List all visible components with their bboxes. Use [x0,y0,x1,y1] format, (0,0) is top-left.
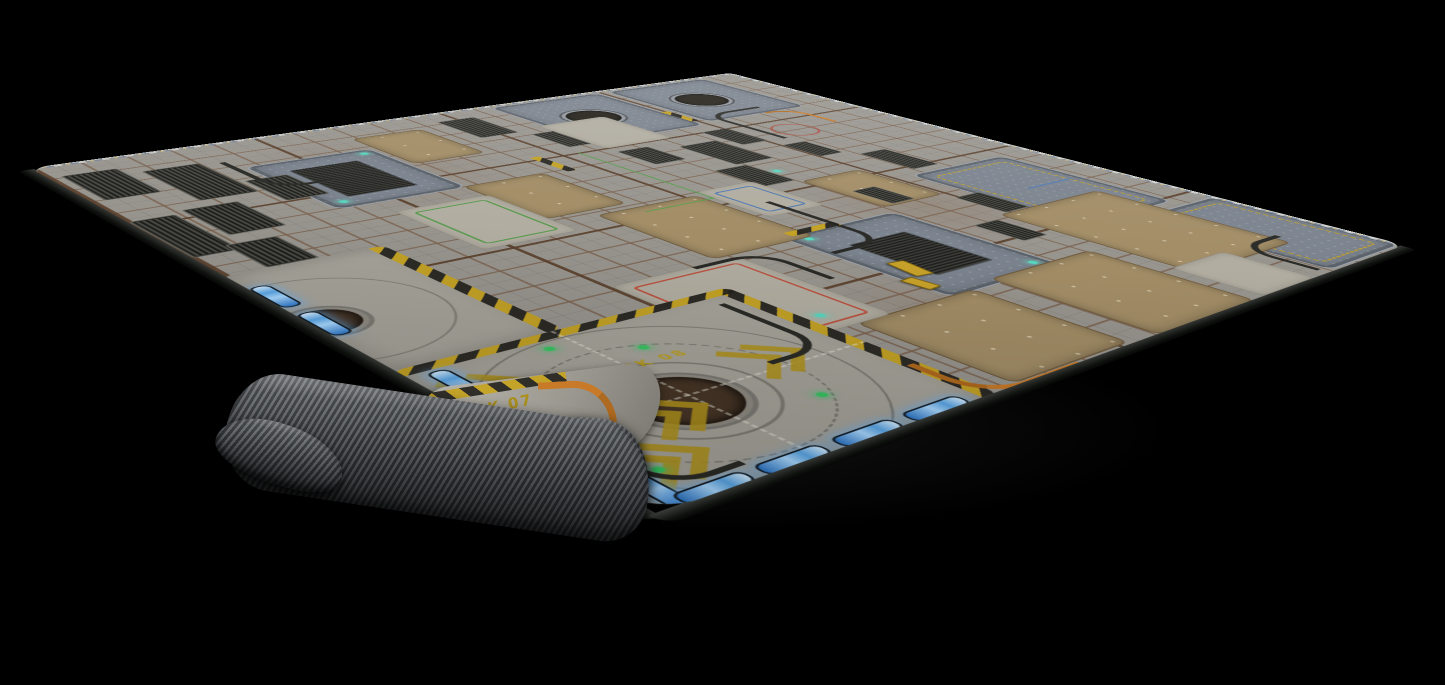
hazard-stripe [529,156,577,171]
teal-indicator-light [337,200,350,203]
vent-grate [782,141,843,156]
pad-hatch [658,91,745,109]
vent-grate [679,140,774,164]
teal-indicator-light [771,170,782,173]
vent-grate [859,149,938,169]
render-canvas: BAY 42 [0,0,1445,685]
vent-grate [617,147,687,165]
vent-grate [437,117,519,138]
teal-indicator-light [359,152,370,155]
